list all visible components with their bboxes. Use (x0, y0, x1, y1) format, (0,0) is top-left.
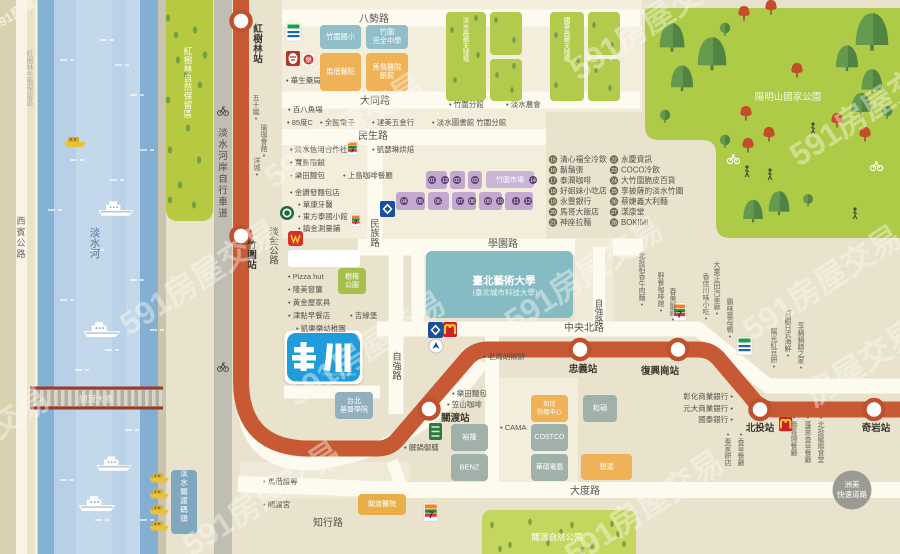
svg-text:21: 21 (550, 221, 556, 227)
svg-text:永豐銀行: 永豐銀行 (560, 196, 591, 206)
svg-text:• 凱瑟琳烘焙: • 凱瑟琳烘焙 (372, 144, 415, 154)
svg-text:西賓公路: 西賓公路 (16, 216, 25, 259)
svg-text:關渡醫院: 關渡醫院 (368, 499, 396, 508)
svg-text:28: 28 (611, 221, 617, 227)
svg-text:奇岩站: 奇岩站 (862, 422, 891, 434)
svg-text:12: 12 (525, 199, 531, 205)
svg-text:淡水關渡碼頭: 淡水關渡碼頭 (180, 469, 188, 523)
svg-text:14: 14 (530, 178, 536, 184)
svg-text:關渡大橋: 關渡大橋 (79, 394, 114, 404)
svg-text:淡水高爾夫球場: 淡水高爾夫球場 (463, 17, 470, 63)
svg-text:永慶資訊: 永慶資訊 (621, 154, 652, 164)
svg-text:北投站: 北投站 (746, 422, 775, 434)
svg-text:• 老周胡椒餅: • 老周胡椒餅 (483, 351, 526, 361)
svg-text:和碩: 和碩 (593, 403, 607, 412)
svg-text:華碩電腦: 華碩電腦 (536, 462, 563, 471)
svg-text:清心福全冷飲: 清心福全冷飲 (560, 154, 607, 164)
svg-text:•蓬萊香草餐廳: •蓬萊香草餐廳 (805, 415, 812, 464)
svg-text:• 竹圍分館: • 竹圍分館 (449, 99, 484, 109)
svg-text:馬偕醫院: 馬偕醫院 (326, 67, 355, 76)
svg-text:關渡站: 關渡站 (441, 412, 470, 424)
svg-text:• 隆美窗簾: • 隆美窗簾 (288, 284, 323, 294)
svg-text:神座拉麵: 神座拉麵 (560, 217, 591, 227)
svg-text:蔡婕義大利麵: 蔡婕義大利麵 (621, 196, 668, 206)
svg-text:26: 26 (611, 200, 617, 206)
svg-text:八勢路: 八勢路 (359, 12, 389, 25)
svg-text:國泰銀行 •: 國泰銀行 • (698, 414, 733, 424)
svg-text:• CAMA: • CAMA (500, 423, 526, 432)
svg-text:享鍋鍋膳之家•: 享鍋鍋膳之家• (798, 321, 805, 372)
svg-text:COCO冷飲: COCO冷飲 (621, 165, 660, 175)
svg-text:陽明山國家公園: 陽明山國家公園 (755, 91, 822, 103)
svg-text:• 饌鍋御膳: • 饌鍋御膳 (404, 442, 439, 452)
svg-text:香佳川味小吃•: 香佳川味小吃• (703, 272, 710, 323)
svg-text:淡水河: 淡水河 (90, 227, 101, 260)
svg-text:• 華生藥局: • 華生藥局 (286, 75, 321, 85)
svg-text:鬍鬚張: 鬍鬚張 (560, 165, 584, 175)
svg-text:大度路: 大度路 (570, 484, 600, 497)
svg-text:25: 25 (611, 189, 617, 195)
svg-text:防癌中心: 防癌中心 (537, 408, 562, 416)
svg-text:7: 7 (677, 309, 682, 319)
svg-text:27: 27 (611, 210, 617, 216)
svg-text:• 淡水圖書館 竹圍分館: • 淡水圖書館 竹圍分館 (432, 117, 506, 127)
svg-text:大竹圍脆皮百貨: 大竹圍脆皮百貨 (621, 175, 676, 185)
svg-text:09: 09 (485, 199, 491, 205)
svg-text:樂: 樂 (305, 55, 312, 64)
svg-text:憩渡: 憩渡 (599, 462, 613, 471)
svg-text:好姐妹小吃店: 好姐妹小吃店 (560, 186, 607, 196)
svg-text:臺北藝術大學: 臺北藝術大學 (473, 274, 536, 287)
svg-text:• 淡水農會: • 淡水農會 (506, 99, 541, 109)
svg-text:民族路: 民族路 (370, 219, 380, 249)
svg-text:22: 22 (611, 158, 617, 164)
svg-text:• 東方泰國小館: • 東方泰國小館 (298, 211, 348, 221)
svg-text:• 85度C: • 85度C (287, 117, 314, 127)
svg-text:7: 7 (354, 219, 358, 226)
svg-text:竹圍: 竹圍 (380, 27, 394, 36)
svg-text:04: 04 (401, 199, 407, 205)
svg-text:18: 18 (550, 189, 556, 195)
svg-text:11: 11 (513, 199, 518, 205)
svg-text:• 單康牙醫: • 單康牙醫 (298, 199, 333, 209)
svg-text:•北投龍鳳食堂: •北投龍鳳食堂 (818, 415, 825, 464)
svg-text:05: 05 (417, 199, 423, 205)
svg-text:基督學院: 基督學院 (340, 404, 368, 413)
svg-text:漾康堂: 漾康堂 (621, 207, 645, 217)
svg-text:• 笠山咖啡: • 笠山咖啡 (447, 399, 482, 409)
svg-text:快速道路: 快速道路 (837, 489, 867, 499)
svg-text:享披薩的淡水竹圍: 享披薩的淡水竹圍 (621, 186, 684, 196)
svg-text:• 樂田麵包: • 樂田麵包 (452, 388, 487, 398)
svg-text:7: 7 (428, 510, 433, 520)
svg-text:• 凱樂樂幼稚園: • 凱樂樂幼稚園 (296, 323, 346, 333)
svg-text:10: 10 (497, 199, 503, 205)
svg-text:07: 07 (457, 199, 463, 205)
svg-text:•壽喜燒餐廳: •壽喜燒餐廳 (791, 415, 798, 457)
svg-text:• 上島咖啡餐廳: • 上島咖啡餐廳 (343, 170, 393, 180)
svg-text:• Pizza hut: • Pizza hut (288, 272, 324, 281)
svg-text:淡水河岸自行車道: 淡水河岸自行車道 (218, 128, 228, 220)
svg-text:• 金讚發麵包店: • 金讚發麵包店 (290, 187, 340, 197)
svg-text:竹圍市場: 竹圍市場 (496, 175, 524, 184)
svg-text:北投稻香牛肉麵•: 北投稻香牛肉麵• (639, 252, 646, 309)
svg-text:彰化商業銀行 •: 彰化商業銀行 • (683, 391, 733, 401)
svg-text:台北: 台北 (347, 396, 361, 405)
svg-text:樹梅: 樹梅 (345, 271, 359, 280)
svg-text:• 吉緣堡: • 吉緣堡 (350, 310, 378, 320)
svg-text:學園路: 學園路 (488, 237, 518, 250)
svg-text:知行路: 知行路 (313, 516, 343, 529)
svg-text:和信: 和信 (543, 400, 555, 408)
svg-text:自強路: 自強路 (392, 351, 402, 382)
svg-text:• 黃金屋家具: • 黃金屋家具 (288, 297, 331, 307)
svg-text:完全中學: 完全中學 (373, 36, 402, 45)
svg-text:13: 13 (442, 178, 448, 184)
svg-text:16: 16 (550, 168, 556, 174)
svg-text:01: 01 (429, 178, 435, 184)
svg-text:20: 20 (550, 210, 556, 216)
svg-text:馬偕醫院: 馬偕醫院 (373, 62, 402, 71)
svg-text:忠義站: 忠義站 (569, 363, 598, 375)
svg-text:15: 15 (550, 158, 556, 164)
svg-text:洲美: 洲美 (845, 479, 860, 489)
svg-text:• 百八魚場: • 百八魚場 (288, 104, 323, 114)
svg-text:復興崗站: 復興崗站 (640, 365, 680, 377)
svg-text:馬哥大飯店: 馬哥大飯店 (560, 207, 599, 217)
svg-text:泰潤咖啡: 泰潤咖啡 (560, 175, 591, 185)
svg-text:23: 23 (611, 168, 617, 174)
svg-text:紅樹林生態保留區: 紅樹林生態保留區 (27, 49, 34, 107)
svg-text:24: 24 (611, 179, 617, 185)
svg-text:08: 08 (469, 199, 475, 205)
svg-text:02: 02 (454, 178, 460, 184)
svg-text:公園: 公園 (345, 281, 359, 289)
svg-text:大業正田汽車廠•: 大業正田汽車廠• (714, 260, 721, 318)
svg-text:竹圍國小: 竹圍國小 (326, 32, 355, 41)
svg-text:BENZ: BENZ (459, 462, 479, 471)
svg-text:03: 03 (472, 178, 478, 184)
svg-text:17: 17 (550, 179, 556, 185)
svg-text:自強路: 自強路 (595, 298, 604, 325)
svg-text:• 津點早餐店: • 津點早餐店 (288, 310, 331, 320)
svg-text:裕隆: 裕隆 (462, 432, 477, 441)
svg-text:06: 06 (435, 199, 441, 205)
svg-text:元大商業銀行 •: 元大商業銀行 • (683, 403, 733, 413)
svg-text:COSTCO: COSTCO (535, 434, 566, 441)
svg-text:紅樹林站: 紅樹林站 (253, 23, 263, 65)
svg-text:紅樹林自然保留區: 紅樹林自然保留區 (184, 46, 193, 119)
svg-text:19: 19 (550, 200, 556, 206)
svg-text:• 鎮金測量鋪: • 鎮金測量鋪 (298, 223, 341, 233)
